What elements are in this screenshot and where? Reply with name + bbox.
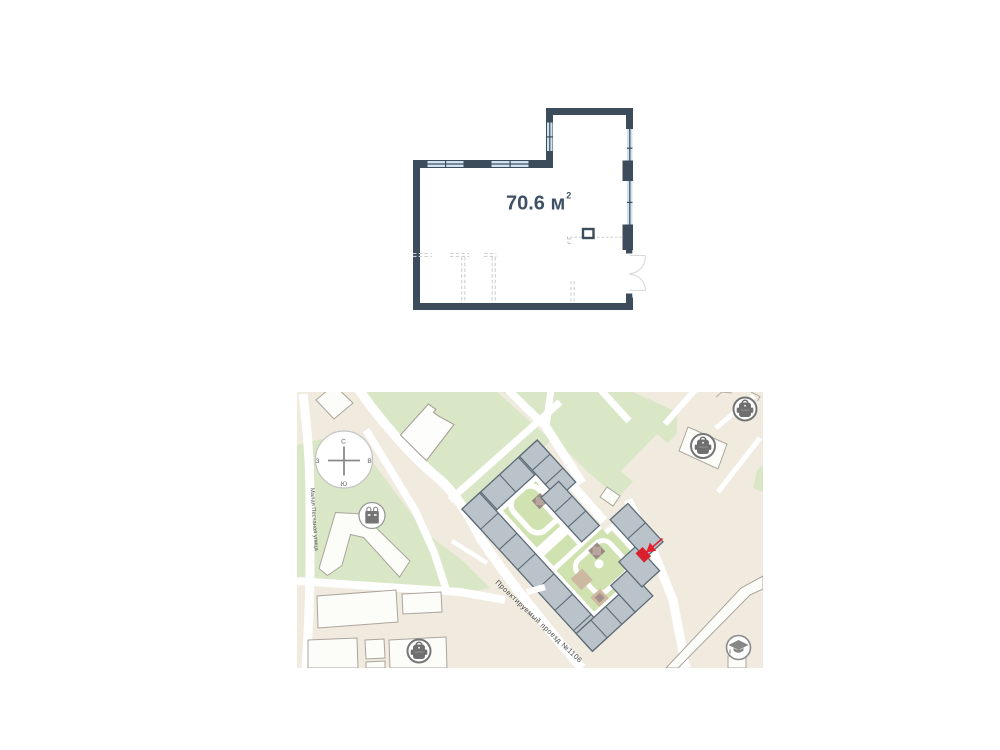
svg-text:С: С [341, 439, 346, 446]
svg-text:Ю: Ю [341, 481, 348, 488]
svg-text:З: З [316, 458, 320, 465]
svg-text:В: В [367, 458, 371, 465]
svg-text:70.6 м2: 70.6 м2 [506, 191, 571, 215]
